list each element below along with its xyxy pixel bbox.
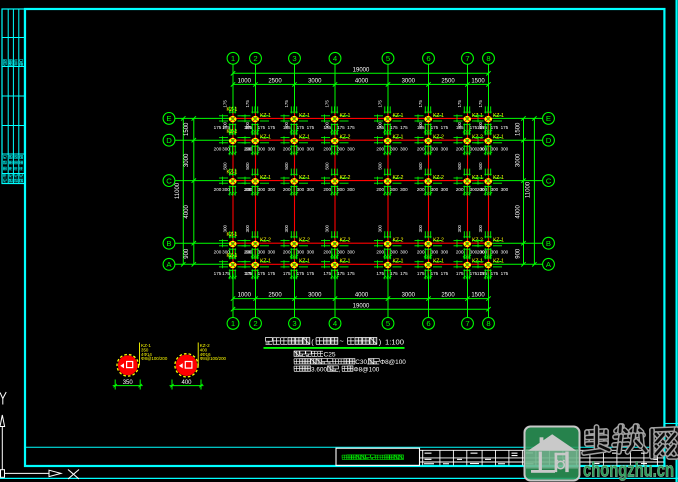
svg-text:3000: 3000 xyxy=(402,292,416,298)
svg-text:300: 300 xyxy=(478,224,483,232)
svg-text:300: 300 xyxy=(297,250,305,255)
svg-text:300: 300 xyxy=(400,187,408,192)
svg-text:175: 175 xyxy=(501,271,509,276)
svg-text:1: 1 xyxy=(231,319,235,328)
svg-text:300: 300 xyxy=(347,147,355,152)
svg-text:): ) xyxy=(379,337,381,346)
svg-text:300: 300 xyxy=(418,224,423,232)
svg-text:E: E xyxy=(546,114,551,123)
svg-text:300: 300 xyxy=(307,147,315,152)
svg-text:175: 175 xyxy=(441,125,449,130)
svg-text:~: ~ xyxy=(340,337,344,346)
svg-text:900: 900 xyxy=(184,248,190,259)
svg-text:200: 200 xyxy=(376,187,384,192)
svg-text:200: 200 xyxy=(456,187,464,192)
svg-text:200: 200 xyxy=(214,147,222,152)
svg-text:200: 200 xyxy=(477,187,485,192)
svg-text:175: 175 xyxy=(222,271,230,276)
svg-text:4: 4 xyxy=(333,54,338,63)
svg-text:6: 6 xyxy=(426,54,430,63)
svg-text:200: 200 xyxy=(417,250,425,255)
svg-text:300: 300 xyxy=(297,147,305,152)
svg-text:175: 175 xyxy=(268,271,276,276)
svg-text:200: 200 xyxy=(417,147,425,152)
svg-text:19000: 19000 xyxy=(353,67,370,73)
svg-text:300: 300 xyxy=(491,147,499,152)
svg-text:200: 200 xyxy=(283,147,291,152)
svg-text:7: 7 xyxy=(465,319,469,328)
svg-text:C30,: C30, xyxy=(355,359,369,366)
svg-text:175: 175 xyxy=(284,100,289,108)
svg-text:175: 175 xyxy=(214,271,222,276)
svg-text:175: 175 xyxy=(457,100,462,108)
svg-text:3.600: 3.600 xyxy=(311,366,327,373)
svg-text:175: 175 xyxy=(337,125,345,130)
svg-text:300: 300 xyxy=(431,250,439,255)
svg-text:300: 300 xyxy=(307,250,315,255)
svg-text:1500: 1500 xyxy=(471,78,485,84)
svg-text:KZ-1: KZ-1 xyxy=(299,175,310,181)
svg-text:C: C xyxy=(546,176,552,185)
svg-text:300: 300 xyxy=(307,187,315,192)
svg-text:175: 175 xyxy=(400,271,408,276)
svg-text:KZ-1: KZ-1 xyxy=(493,113,504,119)
svg-text:300: 300 xyxy=(324,224,329,232)
svg-text:KZ-1: KZ-1 xyxy=(260,175,271,181)
svg-text:19000: 19000 xyxy=(353,303,370,309)
svg-text:2: 2 xyxy=(253,319,257,328)
svg-text:300: 300 xyxy=(284,121,289,129)
svg-text:175: 175 xyxy=(441,271,449,276)
svg-text:1500: 1500 xyxy=(515,122,521,136)
svg-text:KZ-1: KZ-1 xyxy=(433,113,444,119)
svg-text:KZ-1: KZ-1 xyxy=(260,113,271,119)
svg-text:500: 500 xyxy=(245,162,250,170)
svg-text:300: 300 xyxy=(501,187,509,192)
svg-text:300: 300 xyxy=(297,187,305,192)
svg-text:B: B xyxy=(546,239,551,248)
svg-text:11000: 11000 xyxy=(526,181,532,198)
svg-text:200: 200 xyxy=(283,250,291,255)
svg-text:175: 175 xyxy=(377,100,382,108)
svg-text:KZ-1: KZ-1 xyxy=(493,135,504,141)
svg-text:200: 200 xyxy=(376,250,384,255)
svg-text:4000: 4000 xyxy=(355,292,369,298)
svg-text:300: 300 xyxy=(324,121,329,129)
svg-text:175: 175 xyxy=(456,271,464,276)
svg-text:300: 300 xyxy=(347,250,355,255)
svg-text:175: 175 xyxy=(337,271,345,276)
svg-text:3000: 3000 xyxy=(308,78,322,84)
svg-text:300: 300 xyxy=(337,187,345,192)
svg-text:5: 5 xyxy=(386,319,390,328)
svg-text:175: 175 xyxy=(417,271,425,276)
svg-text:175: 175 xyxy=(431,271,439,276)
svg-text:E: E xyxy=(166,114,171,123)
svg-text:KZ-1: KZ-1 xyxy=(493,259,504,265)
svg-text:175: 175 xyxy=(390,125,398,130)
svg-text:KZ-1: KZ-1 xyxy=(260,259,271,265)
svg-text:KZ-2: KZ-2 xyxy=(340,135,351,141)
svg-text:1500: 1500 xyxy=(471,292,485,298)
svg-text:3: 3 xyxy=(292,319,296,328)
svg-text:500: 500 xyxy=(377,162,382,170)
svg-text:175: 175 xyxy=(477,271,485,276)
svg-text:200: 200 xyxy=(214,250,222,255)
svg-text:KZ-1: KZ-1 xyxy=(227,253,238,259)
svg-text:D: D xyxy=(546,136,552,145)
svg-text:KZ-2: KZ-2 xyxy=(340,175,351,181)
svg-text:C25: C25 xyxy=(324,351,336,358)
svg-text:1000: 1000 xyxy=(238,292,252,298)
svg-text:175: 175 xyxy=(418,100,423,108)
svg-text:2500: 2500 xyxy=(268,78,282,84)
svg-text:300: 300 xyxy=(441,250,449,255)
svg-text:175: 175 xyxy=(431,125,439,130)
svg-text:KZ-1: KZ-1 xyxy=(299,259,310,265)
svg-text:300: 300 xyxy=(222,121,227,129)
svg-text:300: 300 xyxy=(337,250,345,255)
svg-text:175: 175 xyxy=(323,271,331,276)
svg-text:KZ-1: KZ-1 xyxy=(227,169,238,175)
svg-text:1000: 1000 xyxy=(238,78,252,84)
svg-text:KZ-1: KZ-1 xyxy=(433,259,444,265)
svg-text:KZ-1: KZ-1 xyxy=(260,135,271,141)
svg-text:KZ-1: KZ-1 xyxy=(227,107,238,113)
svg-text:300: 300 xyxy=(222,224,227,232)
svg-text:A: A xyxy=(166,260,172,269)
svg-text:KZ-1: KZ-1 xyxy=(299,113,310,119)
svg-text:4000: 4000 xyxy=(355,78,369,84)
svg-text:3000: 3000 xyxy=(515,153,521,167)
svg-text:300: 300 xyxy=(441,147,449,152)
svg-text:300: 300 xyxy=(222,187,230,192)
svg-text:300: 300 xyxy=(400,147,408,152)
svg-text:175: 175 xyxy=(390,271,398,276)
svg-text:300: 300 xyxy=(390,147,398,152)
svg-text:2500: 2500 xyxy=(441,292,455,298)
svg-text:500: 500 xyxy=(222,162,227,170)
svg-text:300: 300 xyxy=(284,224,289,232)
svg-text:,: , xyxy=(339,366,341,373)
svg-text:500: 500 xyxy=(418,162,423,170)
svg-text:200: 200 xyxy=(417,187,425,192)
svg-text:200: 200 xyxy=(244,250,252,255)
svg-text:300: 300 xyxy=(491,187,499,192)
svg-text:B: B xyxy=(166,239,171,248)
svg-text:3000: 3000 xyxy=(308,292,322,298)
svg-text:300: 300 xyxy=(457,121,462,129)
svg-text:175: 175 xyxy=(245,100,250,108)
svg-text:500: 500 xyxy=(284,162,289,170)
svg-text:C: C xyxy=(166,176,172,185)
svg-text:KZ-1: KZ-1 xyxy=(227,129,238,135)
svg-text:300: 300 xyxy=(431,187,439,192)
svg-text:200: 200 xyxy=(456,147,464,152)
svg-text:8: 8 xyxy=(486,319,490,328)
svg-text:300: 300 xyxy=(258,147,266,152)
svg-text:300: 300 xyxy=(400,250,408,255)
svg-text:KZ-2: KZ-2 xyxy=(433,238,444,244)
svg-text:175: 175 xyxy=(307,271,315,276)
svg-text:KZ-1: KZ-1 xyxy=(493,238,504,244)
svg-text:175: 175 xyxy=(258,125,266,130)
svg-text:175: 175 xyxy=(297,125,305,130)
svg-text:300: 300 xyxy=(418,121,423,129)
svg-text:200: 200 xyxy=(244,187,252,192)
svg-text:300: 300 xyxy=(377,121,382,129)
svg-text:Φ8@100: Φ8@100 xyxy=(380,359,406,366)
svg-text:KZ-2: KZ-2 xyxy=(260,238,271,244)
svg-text:Φ8@100: Φ8@100 xyxy=(354,366,380,373)
svg-text:300: 300 xyxy=(441,187,449,192)
svg-text:175: 175 xyxy=(347,125,355,130)
svg-text:300: 300 xyxy=(258,187,266,192)
svg-text:300: 300 xyxy=(222,147,230,152)
svg-text:300: 300 xyxy=(245,224,250,232)
svg-text:300: 300 xyxy=(268,250,276,255)
svg-text:175: 175 xyxy=(324,100,329,108)
svg-text:200: 200 xyxy=(477,250,485,255)
svg-text:500: 500 xyxy=(324,162,329,170)
svg-text:4: 4 xyxy=(333,319,338,328)
svg-text:200: 200 xyxy=(477,147,485,152)
svg-text:KZ-1: KZ-1 xyxy=(393,135,404,141)
svg-text:300: 300 xyxy=(390,250,398,255)
svg-text:300: 300 xyxy=(337,147,345,152)
svg-text:175: 175 xyxy=(244,271,252,276)
svg-text:175: 175 xyxy=(307,125,315,130)
svg-text:300: 300 xyxy=(377,224,382,232)
svg-text:175: 175 xyxy=(222,100,227,108)
svg-text:4000: 4000 xyxy=(515,205,521,219)
svg-text:KZ-2: KZ-2 xyxy=(340,238,351,244)
svg-text:4000: 4000 xyxy=(184,205,190,219)
svg-text:3: 3 xyxy=(292,54,296,63)
svg-text:KZ-2: KZ-2 xyxy=(299,238,310,244)
svg-text:3000: 3000 xyxy=(402,78,416,84)
svg-text:175: 175 xyxy=(258,271,266,276)
svg-text:KZ-2: KZ-2 xyxy=(433,135,444,141)
svg-text:5: 5 xyxy=(386,54,390,63)
svg-text:11000: 11000 xyxy=(175,182,181,199)
svg-text:175: 175 xyxy=(491,125,499,130)
svg-text:KZ-1: KZ-1 xyxy=(340,259,351,265)
svg-text:300: 300 xyxy=(347,187,355,192)
svg-text:300: 300 xyxy=(268,147,276,152)
svg-text:A: A xyxy=(546,260,552,269)
svg-text:500: 500 xyxy=(478,162,483,170)
svg-text:200: 200 xyxy=(323,187,331,192)
svg-text:175: 175 xyxy=(478,100,483,108)
svg-text:175: 175 xyxy=(347,271,355,276)
svg-text:175: 175 xyxy=(501,125,509,130)
svg-text:200: 200 xyxy=(283,187,291,192)
svg-text:300: 300 xyxy=(501,147,509,152)
svg-text:KZ-2: KZ-2 xyxy=(433,175,444,181)
svg-text:175: 175 xyxy=(400,125,408,130)
svg-text:2500: 2500 xyxy=(441,78,455,84)
svg-text:KZ-1: KZ-1 xyxy=(227,232,238,238)
svg-text:KZ-2: KZ-2 xyxy=(393,175,404,181)
svg-text:chongzhu.cn: chongzhu.cn xyxy=(583,458,674,481)
svg-text:200: 200 xyxy=(244,147,252,152)
svg-text:175: 175 xyxy=(376,271,384,276)
svg-text:200: 200 xyxy=(323,250,331,255)
svg-text:300: 300 xyxy=(431,147,439,152)
svg-text:KZ-2: KZ-2 xyxy=(393,238,404,244)
svg-text:200: 200 xyxy=(376,147,384,152)
svg-text:300: 300 xyxy=(390,187,398,192)
svg-text:KZ-1: KZ-1 xyxy=(393,259,404,265)
svg-text:350: 350 xyxy=(123,380,134,386)
svg-text:175: 175 xyxy=(268,125,276,130)
svg-text:200: 200 xyxy=(323,147,331,152)
svg-text:300: 300 xyxy=(478,121,483,129)
svg-text:1:100: 1:100 xyxy=(385,337,404,346)
svg-text:KZ-1: KZ-1 xyxy=(393,113,404,119)
svg-text:300: 300 xyxy=(268,187,276,192)
svg-text:200: 200 xyxy=(456,250,464,255)
svg-text:6: 6 xyxy=(426,319,430,328)
svg-text:2500: 2500 xyxy=(268,292,282,298)
svg-text:7: 7 xyxy=(465,54,469,63)
svg-text:2: 2 xyxy=(253,54,257,63)
svg-text:KZ-1: KZ-1 xyxy=(340,113,351,119)
svg-text:1500: 1500 xyxy=(184,122,190,136)
svg-text:D: D xyxy=(166,136,172,145)
svg-text:175: 175 xyxy=(297,271,305,276)
svg-text:200: 200 xyxy=(214,187,222,192)
svg-text:1: 1 xyxy=(231,54,235,63)
svg-text:KZ-1: KZ-1 xyxy=(299,135,310,141)
svg-text:300: 300 xyxy=(457,224,462,232)
svg-text:8: 8 xyxy=(486,54,490,63)
svg-text:300: 300 xyxy=(245,121,250,129)
svg-text:3000: 3000 xyxy=(184,153,190,167)
svg-text:175: 175 xyxy=(283,271,291,276)
svg-text:900: 900 xyxy=(515,248,521,259)
svg-text:400: 400 xyxy=(181,380,192,386)
svg-text:300: 300 xyxy=(501,250,509,255)
svg-text:Φ8@100/200: Φ8@100/200 xyxy=(200,356,227,361)
svg-text:175: 175 xyxy=(491,271,499,276)
svg-text:300: 300 xyxy=(258,250,266,255)
svg-text:500: 500 xyxy=(457,162,462,170)
svg-text:300: 300 xyxy=(491,250,499,255)
svg-text:Φ8@100/200: Φ8@100/200 xyxy=(141,356,168,361)
svg-text:175: 175 xyxy=(214,125,222,130)
svg-text:KZ-1: KZ-1 xyxy=(493,175,504,181)
